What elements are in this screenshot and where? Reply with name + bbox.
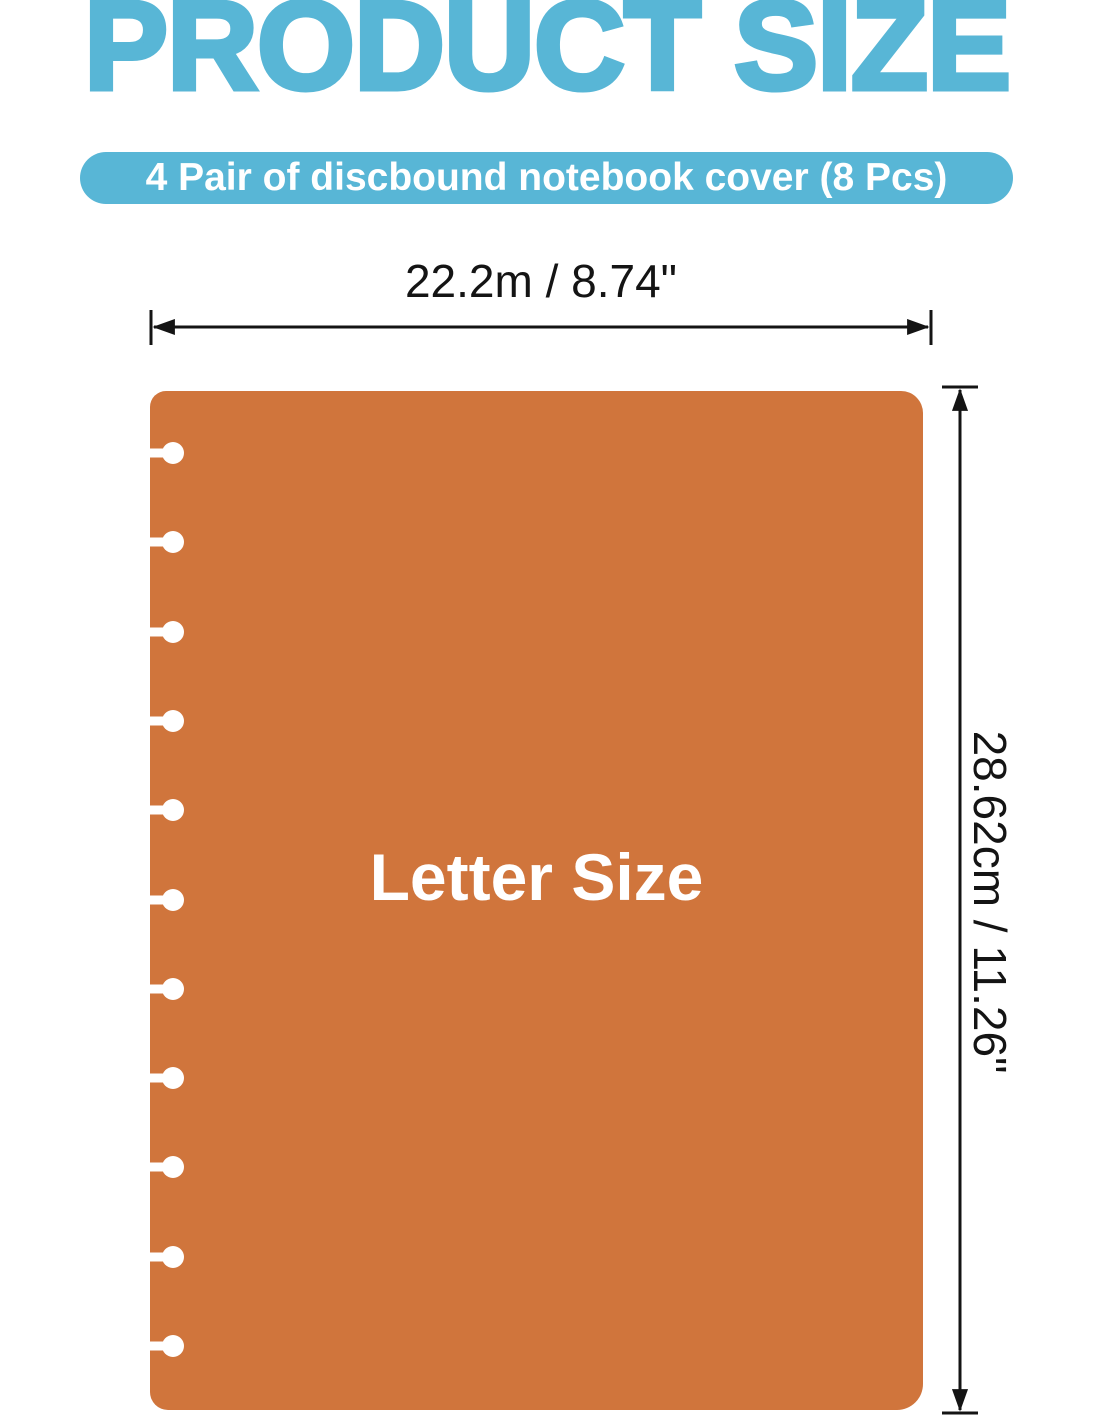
notebook-cover: Letter Size bbox=[150, 391, 923, 1410]
disc-hole bbox=[150, 977, 186, 1001]
disc-hole bbox=[150, 530, 186, 554]
disc-hole bbox=[150, 1066, 186, 1090]
horizontal-dimension-arrow-icon bbox=[140, 307, 942, 349]
disc-hole bbox=[150, 888, 186, 912]
disc-hole bbox=[150, 1334, 186, 1358]
width-dimension-label: 22.2m / 8.74" bbox=[140, 254, 942, 308]
disc-hole bbox=[150, 1155, 186, 1179]
height-dimension-label: 28.62cm / 11.26" bbox=[965, 652, 1015, 1152]
page-title: PRODUCT SIZE bbox=[0, 0, 1094, 109]
disc-hole bbox=[150, 798, 186, 822]
subtitle-badge: 4 Pair of discbound notebook cover (8 Pc… bbox=[80, 152, 1013, 204]
disc-hole bbox=[150, 620, 186, 644]
disc-hole bbox=[150, 709, 186, 733]
disc-hole bbox=[150, 1245, 186, 1269]
product-size-infographic: PRODUCT SIZE 4 Pair of discbound noteboo… bbox=[0, 0, 1094, 1419]
cover-size-label: Letter Size bbox=[150, 839, 923, 915]
disc-hole bbox=[150, 441, 186, 465]
